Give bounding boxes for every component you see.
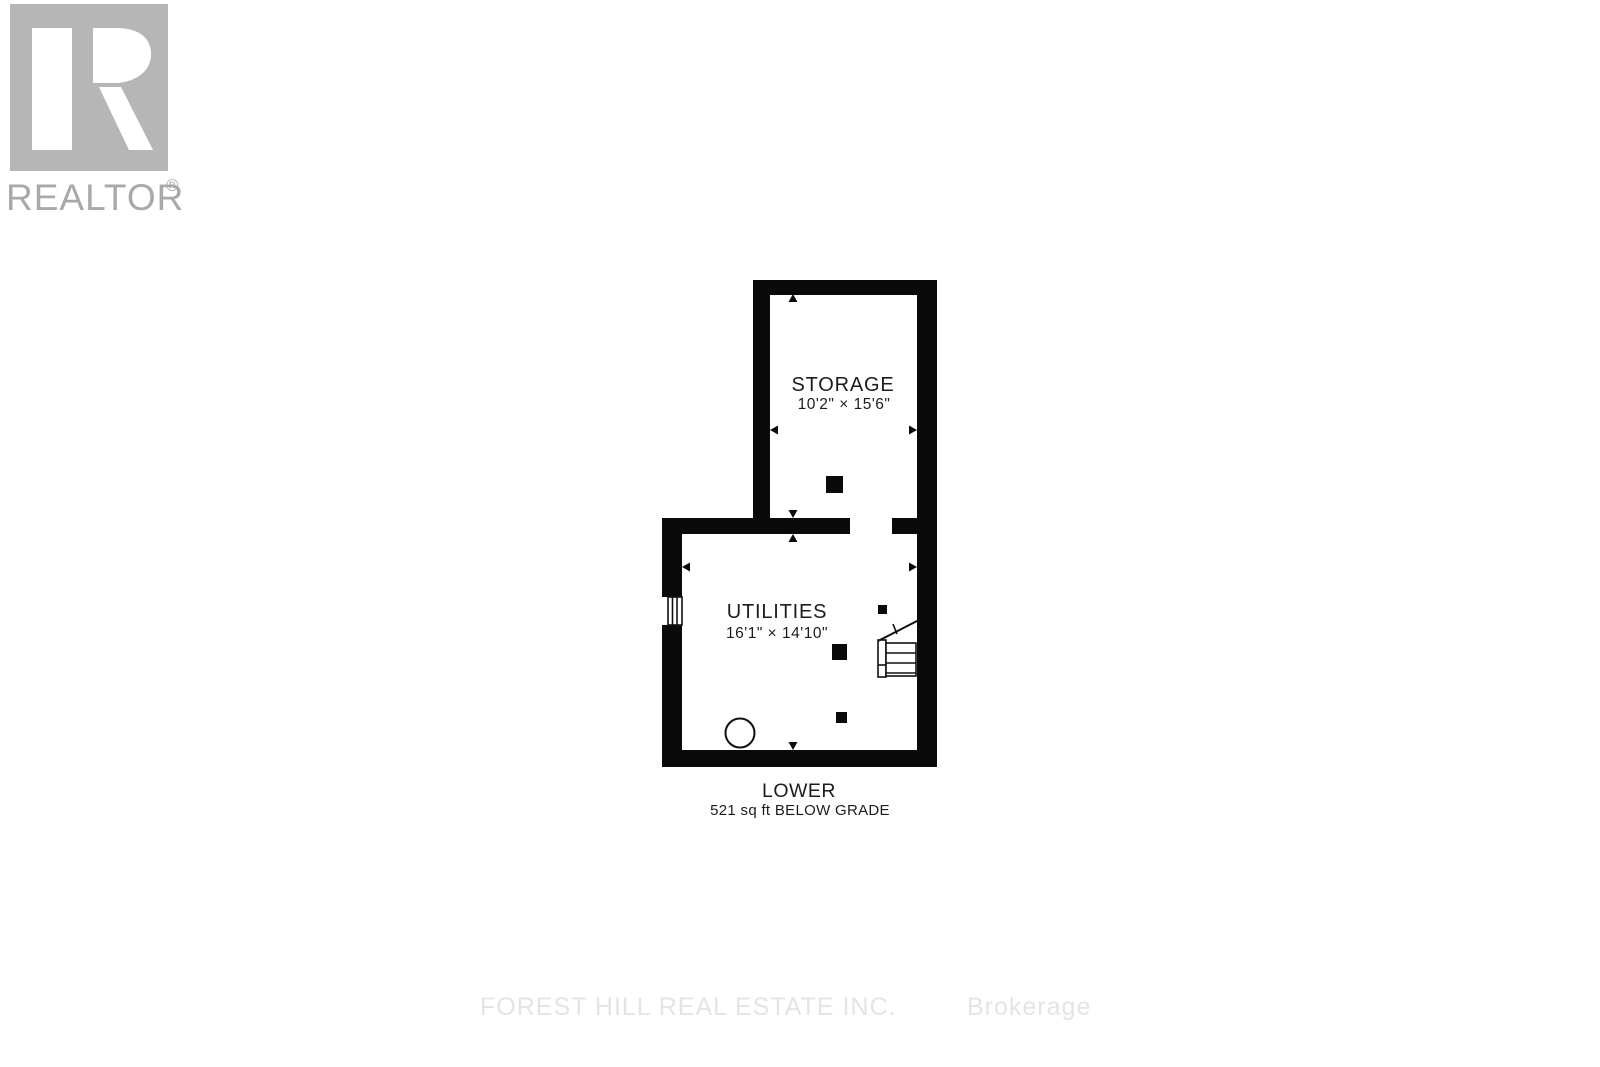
floorplan-page: REALTOR ® <box>0 0 1600 1067</box>
dimension-arrow <box>789 534 798 542</box>
floor-title: LOWER 521 sq ft BELOW GRADE <box>710 780 890 819</box>
dimension-arrow <box>789 294 798 302</box>
dimension-arrow <box>909 563 917 572</box>
tank-circle-icon <box>726 719 755 748</box>
support-post <box>878 605 887 614</box>
wall-segment <box>662 534 682 597</box>
storage-room-dimensions: 10'2" × 15'6" <box>798 396 891 413</box>
dimension-arrow <box>909 426 917 435</box>
realtor-logo: REALTOR ® <box>6 4 184 218</box>
stairs-icon <box>878 620 919 677</box>
room-labels: STORAGE 10'2" × 15'6" UTILITIES 16'1" × … <box>726 374 894 642</box>
floorplan-image: REALTOR ® <box>0 0 1600 1067</box>
support-post <box>832 644 847 660</box>
realtor-wordmark: REALTOR <box>6 177 184 218</box>
wall-segment <box>917 280 937 767</box>
wall-segment <box>753 280 937 295</box>
support-post <box>826 476 843 493</box>
dimension-arrow <box>789 510 798 518</box>
wall-segment <box>662 518 850 534</box>
floor-area-below-grade: 521 sq ft BELOW GRADE <box>710 802 890 819</box>
wall-segment <box>662 625 682 767</box>
watermark-company: FOREST HILL REAL ESTATE INC. <box>480 993 897 1021</box>
window-icon <box>668 597 682 625</box>
plan-walls-and-solids <box>662 280 937 767</box>
watermark-suffix: Brokerage <box>967 993 1091 1021</box>
dimension-arrow <box>770 426 778 435</box>
wall-segment <box>662 750 937 767</box>
dimension-arrow <box>682 563 690 572</box>
brokerage-watermark: FOREST HILL REAL ESTATE INC. Brokerage <box>480 993 1091 1021</box>
dimension-arrow <box>789 742 798 750</box>
registered-trademark-icon: ® <box>166 176 179 195</box>
support-post <box>836 712 847 723</box>
wall-segment <box>892 518 917 534</box>
floor-name: LOWER <box>762 780 836 802</box>
utilities-room-label: UTILITIES <box>727 601 828 623</box>
storage-room-label: STORAGE <box>791 374 894 396</box>
wall-segment <box>753 295 770 518</box>
utilities-room-dimensions: 16'1" × 14'10" <box>726 625 828 642</box>
